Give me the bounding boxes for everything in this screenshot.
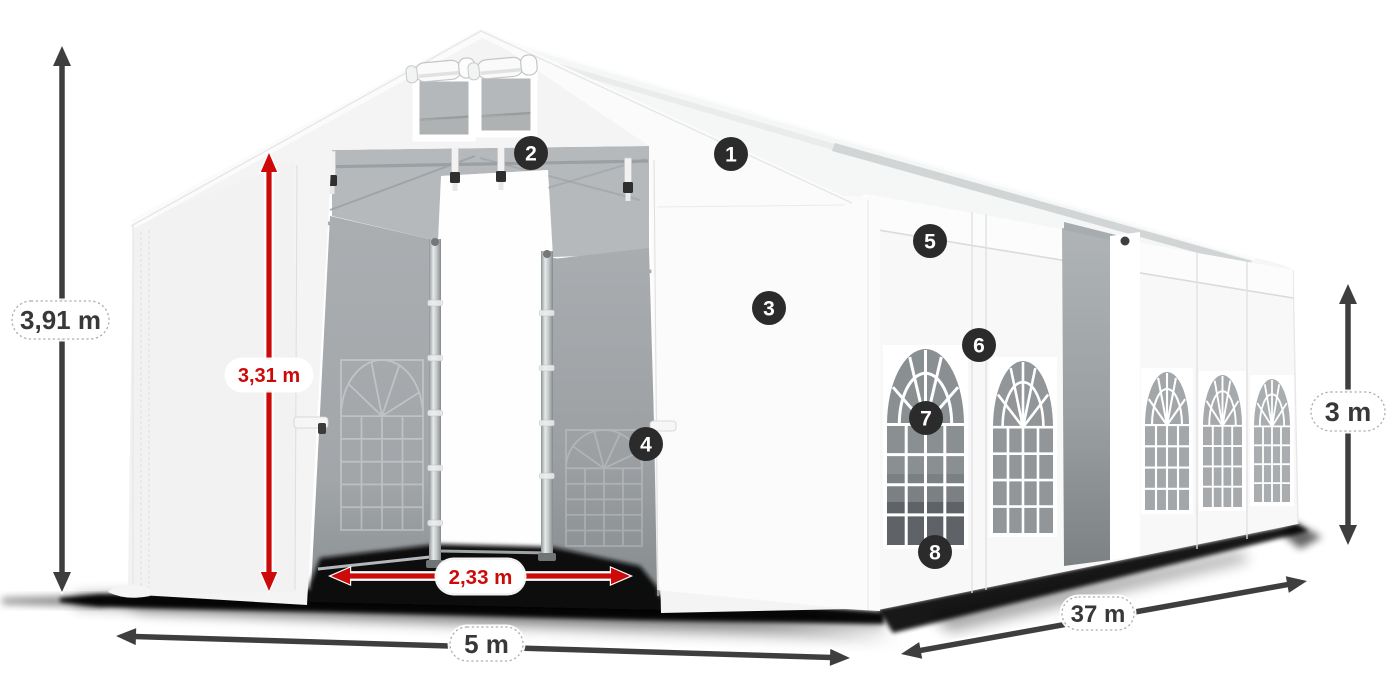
svg-text:2: 2 xyxy=(525,143,537,166)
svg-text:1: 1 xyxy=(725,144,737,167)
svg-text:7: 7 xyxy=(920,408,932,431)
svg-text:3 m: 3 m xyxy=(1325,397,1372,427)
svg-text:5 m: 5 m xyxy=(464,629,509,659)
svg-text:3: 3 xyxy=(763,298,775,321)
svg-text:37 m: 37 m xyxy=(1071,601,1126,628)
svg-text:8: 8 xyxy=(929,542,941,565)
svg-text:3,91 m: 3,91 m xyxy=(20,305,101,335)
svg-text:4: 4 xyxy=(640,434,652,457)
svg-text:6: 6 xyxy=(973,335,985,358)
svg-text:5: 5 xyxy=(924,231,936,254)
svg-text:3,31 m: 3,31 m xyxy=(238,365,300,387)
svg-text:2,33 m: 2,33 m xyxy=(449,566,513,589)
